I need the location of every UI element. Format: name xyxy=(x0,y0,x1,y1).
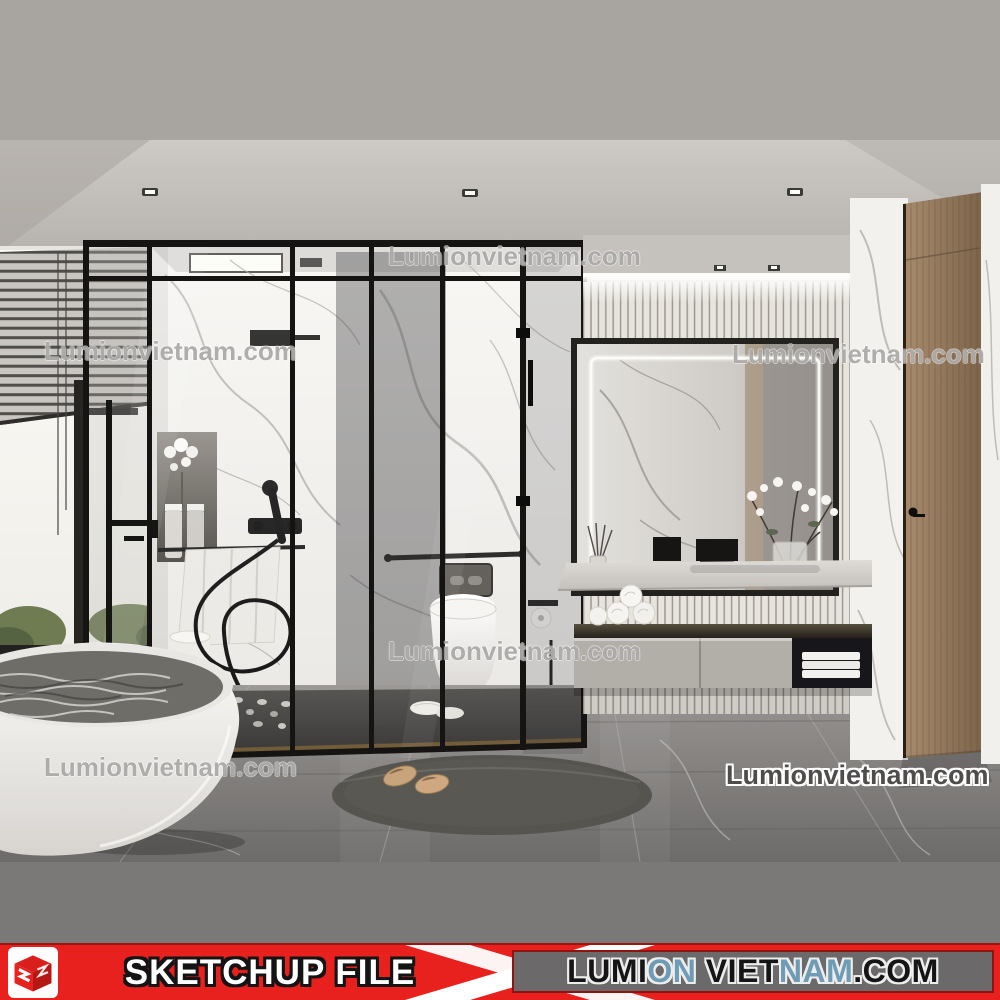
site-name: LUMION VIETNAM.COM xyxy=(567,953,939,990)
shower-door-handle xyxy=(528,360,533,406)
bottom-gray-band xyxy=(0,862,1000,943)
site-name-box: LUMION VIETNAM.COM xyxy=(512,950,994,993)
top-gray-band xyxy=(0,0,1000,140)
sketchup-cube-icon xyxy=(11,951,55,995)
door-hinge xyxy=(516,496,530,506)
door-hinge xyxy=(516,328,530,338)
watermark-text: Lumionvietnam.com xyxy=(388,241,641,272)
watermark-text: Lumionvietnam.com xyxy=(388,636,641,667)
footer-banner: SKETCHUP FILE LUMION VIETNAM.COM xyxy=(0,943,1000,1000)
site-name-segment: VIET xyxy=(696,953,779,989)
watermark-text: Lumionvietnam.com xyxy=(44,752,297,783)
wood-door xyxy=(898,192,992,788)
far-right-marble xyxy=(981,184,1000,764)
site-name-segment: LUMI xyxy=(567,953,647,989)
site-name-segment: .COM xyxy=(853,953,939,989)
sketchup-logo xyxy=(8,947,58,998)
promo-poster: Lumionvietnam.com Lumionvietnam.com Lumi… xyxy=(0,0,1000,1000)
watermark-text: Lumionvietnam.com xyxy=(732,339,985,370)
vanity-countertop xyxy=(558,560,872,590)
window-mullion xyxy=(74,380,83,658)
integrated-basin xyxy=(690,565,820,573)
watermark-text: Lumionvietnam.com xyxy=(726,760,989,791)
site-name-segment: NAM xyxy=(779,953,853,989)
folded-towels xyxy=(802,652,860,678)
sketchup-file-label: SKETCHUP FILE xyxy=(70,945,470,1000)
site-name-segment: ON xyxy=(647,953,696,989)
watermark-text: Lumionvietnam.com xyxy=(44,336,297,367)
floor-rug xyxy=(332,755,652,835)
